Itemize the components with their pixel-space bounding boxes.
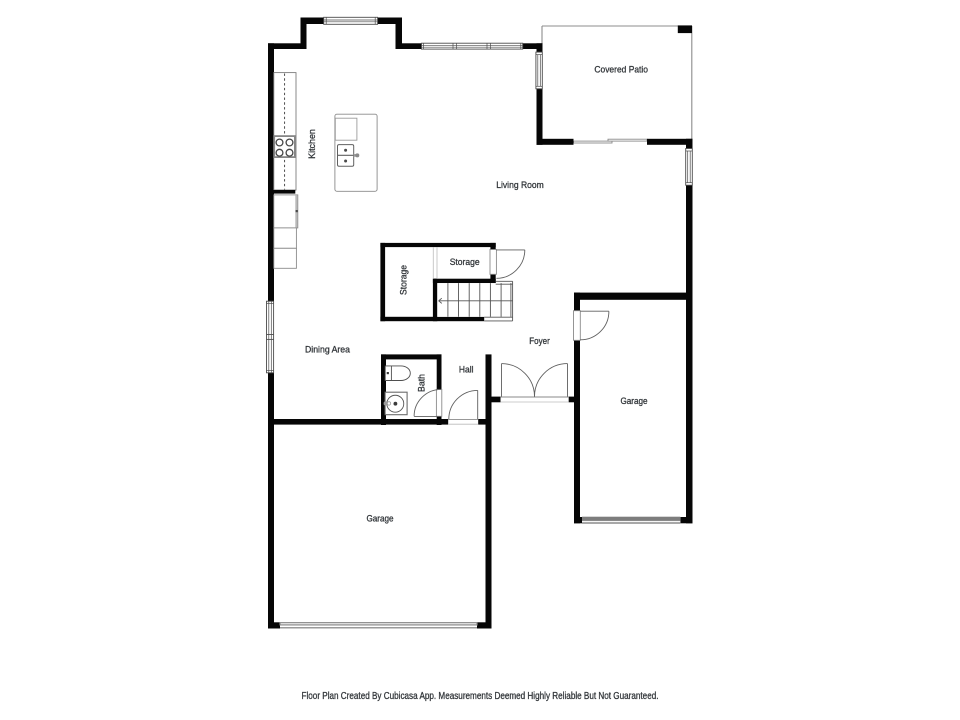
svg-text:Foyer: Foyer bbox=[529, 336, 550, 347]
svg-text:Hall: Hall bbox=[459, 365, 474, 376]
svg-text:Storage: Storage bbox=[398, 265, 409, 295]
svg-text:Garage: Garage bbox=[620, 396, 647, 407]
svg-text:Covered Patio: Covered Patio bbox=[594, 65, 648, 76]
svg-text:Storage: Storage bbox=[450, 257, 480, 268]
svg-text:Garage: Garage bbox=[366, 513, 393, 524]
svg-text:Bath: Bath bbox=[417, 374, 428, 392]
svg-text:Floor Plan Created By Cubicasa: Floor Plan Created By Cubicasa App. Meas… bbox=[302, 691, 659, 702]
svg-text:Dining Area: Dining Area bbox=[305, 344, 351, 355]
svg-text:Living Room: Living Room bbox=[496, 180, 544, 191]
svg-text:Kitchen: Kitchen bbox=[307, 129, 318, 159]
